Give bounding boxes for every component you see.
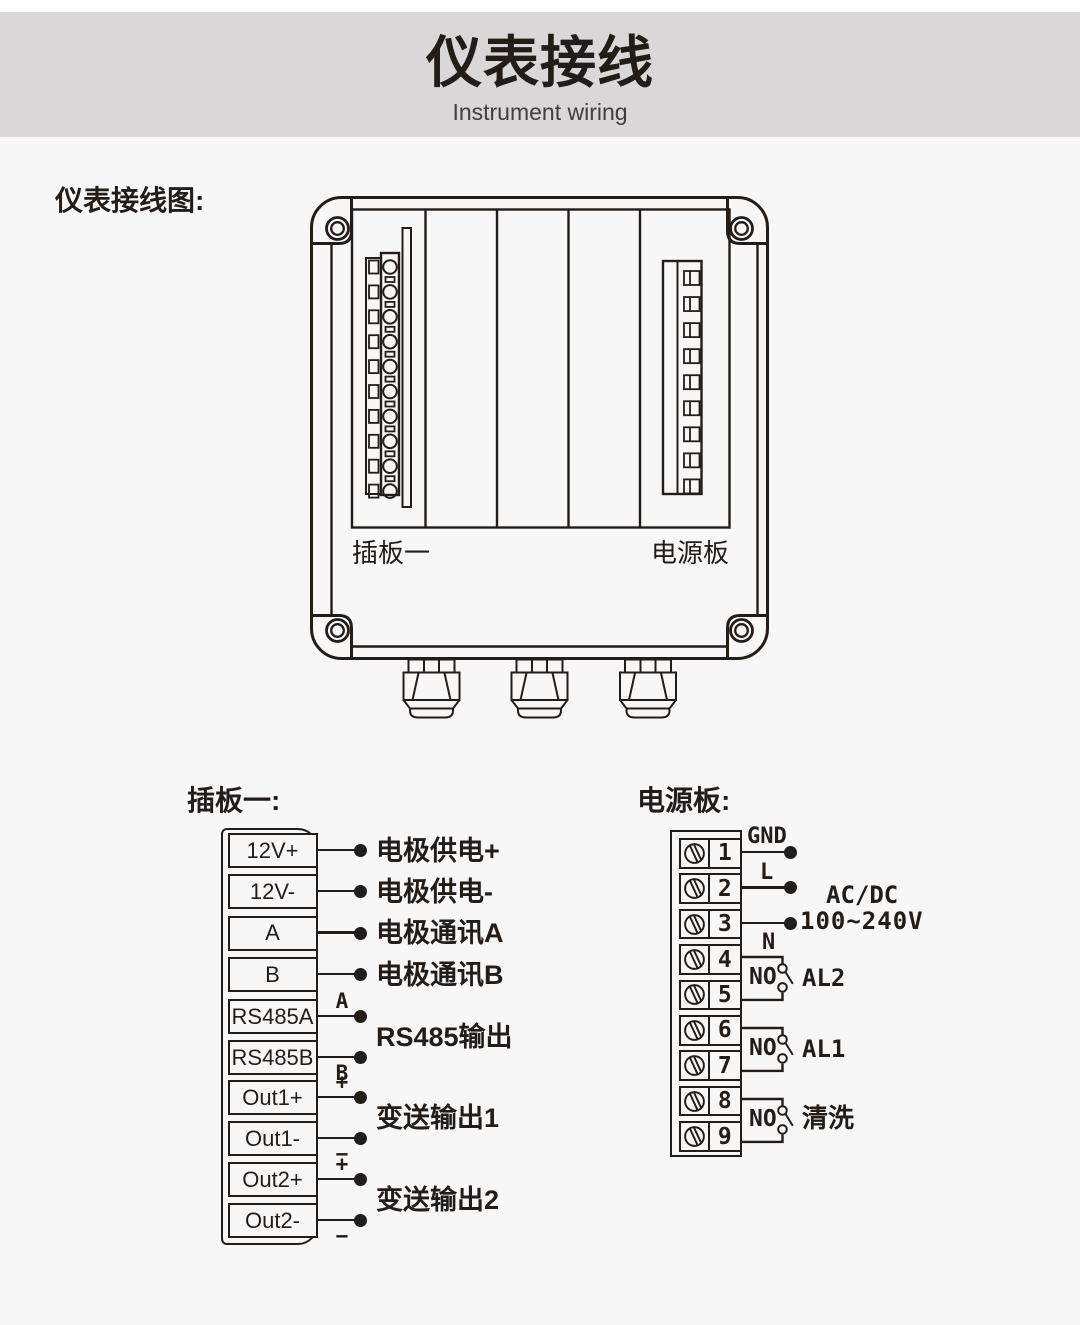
panel-components xyxy=(366,228,702,718)
powerboard-terminal-row: 9 xyxy=(679,1121,743,1152)
wire-dot xyxy=(354,1051,367,1064)
page-subtitle: Instrument wiring xyxy=(0,99,1080,126)
wire-dot xyxy=(354,1173,367,1186)
wire-label: 电极通讯B xyxy=(376,959,504,991)
screw-cell xyxy=(681,840,710,867)
relay-name-label: AL2 xyxy=(802,964,845,992)
wire-line xyxy=(318,973,355,976)
plugboard-terminal: Out1- xyxy=(228,1121,318,1156)
wire-polarity-mark: A xyxy=(331,990,353,1012)
enclosure-drawing xyxy=(290,185,790,730)
wire-dot xyxy=(354,1214,367,1227)
wire-dot xyxy=(354,968,367,981)
power-wire-label: GND xyxy=(747,825,787,849)
wire-polarity-mark: + xyxy=(331,1071,353,1093)
panel-dividers xyxy=(426,210,641,528)
wiring-diagram-label: 仪表接线图: xyxy=(55,179,204,219)
wire-label: 电极供电- xyxy=(376,876,493,908)
wire-line xyxy=(318,890,355,893)
wire-line xyxy=(742,922,786,925)
screw-icon xyxy=(683,1125,706,1148)
wire-label: 变送输出2 xyxy=(376,1184,499,1216)
screw-cell xyxy=(681,1123,710,1150)
relay-contact-label: NO xyxy=(749,1106,777,1132)
wire-line xyxy=(318,1096,355,1099)
powerboard-terminal-row: 5 xyxy=(679,980,743,1011)
relay-name-label: AL1 xyxy=(802,1035,845,1063)
enclosure-board1-label: 插板一 xyxy=(352,533,430,570)
plugboard-terminal: Out2+ xyxy=(228,1162,318,1197)
plugboard-title: 插板一: xyxy=(187,779,280,819)
screw-cell xyxy=(681,1052,710,1079)
plugboard-terminal: RS485A xyxy=(228,999,318,1034)
page-title: 仪表接线 xyxy=(0,33,1080,93)
screw-cell xyxy=(681,946,710,973)
supply-rating-line2: 100~240V xyxy=(800,907,924,935)
plugboard-terminal: A xyxy=(228,916,318,951)
terminal-number: 2 xyxy=(710,875,741,902)
wire-dot xyxy=(354,927,367,940)
wire-dot xyxy=(354,885,367,898)
supply-rating-line1: AC/DC xyxy=(826,881,898,909)
relay-contact-label: NO xyxy=(749,964,777,990)
powerboard-terminal-row: 3 xyxy=(679,909,743,940)
screw-icon xyxy=(683,842,706,865)
terminal-number: 1 xyxy=(710,840,741,867)
wire-line xyxy=(318,1015,355,1018)
screw-cell xyxy=(681,1017,710,1044)
powerboard-terminal-row: 8 xyxy=(679,1086,743,1117)
wire-dot xyxy=(354,1010,367,1023)
inner-panel xyxy=(352,210,730,528)
top-margin xyxy=(0,0,1080,12)
wire-dot xyxy=(354,844,367,857)
screw-icon xyxy=(683,1090,706,1113)
wire-label: RS485输出 xyxy=(376,1021,513,1053)
wire-label: 电极供电+ xyxy=(376,835,500,867)
wire-label: 电极通讯A xyxy=(376,917,504,949)
powerboard-terminal-row: 7 xyxy=(679,1050,743,1081)
plugboard-terminal: 12V- xyxy=(228,874,318,909)
screw-icon xyxy=(683,983,706,1006)
wire-line xyxy=(318,931,355,934)
relay-name-label: 清洗 xyxy=(802,1104,854,1132)
relay-contact-label: NO xyxy=(749,1035,777,1061)
powerboard-title: 电源板: xyxy=(637,779,730,819)
wire-line xyxy=(318,1178,355,1181)
plugboard-terminal: 12V+ xyxy=(228,833,318,868)
enclosure-power-label: 电源板 xyxy=(651,533,729,570)
wire-polarity-mark: − xyxy=(331,1225,353,1247)
plugboard-terminal: RS485B xyxy=(228,1040,318,1075)
screw-cell xyxy=(681,875,710,902)
screw-icon xyxy=(683,877,706,900)
wire-line xyxy=(318,1056,355,1059)
screw-cell xyxy=(681,982,710,1009)
wire-polarity-mark: + xyxy=(331,1153,353,1175)
page: 仪表接线 Instrument wiring 仪表接线图: 插板一 电源板 插板… xyxy=(0,0,1080,1325)
wire-dot xyxy=(784,881,797,894)
wire-line xyxy=(742,851,786,854)
screw-icon xyxy=(683,948,706,971)
wire-dot xyxy=(354,1132,367,1145)
plugboard-terminal: Out1+ xyxy=(228,1080,318,1115)
screw-icon xyxy=(683,913,706,936)
power-wire-label: L xyxy=(760,861,773,885)
wire-label: 变送输出1 xyxy=(376,1102,499,1134)
powerboard-terminal-row: 2 xyxy=(679,873,743,904)
terminal-number: 3 xyxy=(710,911,741,938)
screw-icon xyxy=(683,1019,706,1042)
wire-line xyxy=(318,1137,355,1140)
plugboard-terminal: Out2- xyxy=(228,1203,318,1238)
powerboard-terminal-row: 4 xyxy=(679,944,743,975)
wire-dot xyxy=(784,917,797,930)
wire-line xyxy=(318,1219,355,1222)
screw-cell xyxy=(681,911,710,938)
powerboard-terminal-row: 1 xyxy=(679,838,743,869)
screw-icon xyxy=(683,1054,706,1077)
wire-dot xyxy=(354,1091,367,1104)
plugboard-terminal: B xyxy=(228,957,318,992)
wire-line xyxy=(318,849,355,852)
wire-line xyxy=(742,886,786,889)
powerboard-terminal-row: 6 xyxy=(679,1015,743,1046)
screw-cell xyxy=(681,1088,710,1115)
